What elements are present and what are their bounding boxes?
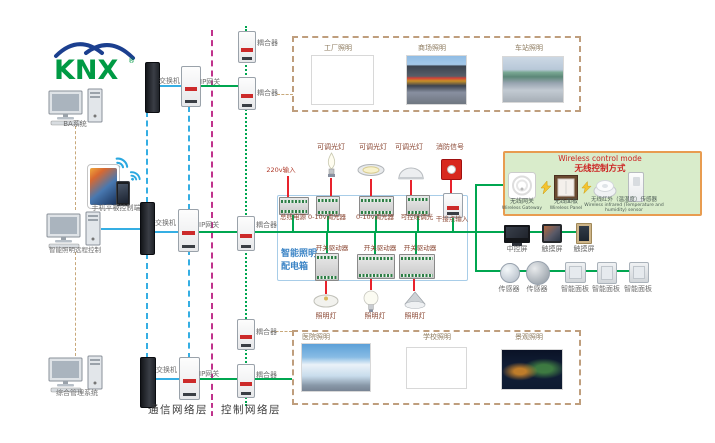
lan-gateway-trunk-bottom bbox=[188, 249, 190, 359]
candle-lamp-icon bbox=[324, 152, 339, 178]
wireless-sensor-icon bbox=[593, 177, 617, 198]
switch-mid bbox=[140, 202, 155, 255]
switch-bottom-label: 交换机 bbox=[156, 366, 177, 374]
downlight-icon bbox=[357, 163, 385, 179]
wireless-sensor-label: 无线红外（温湿度）传感器 Wireless infrared (Temperat… bbox=[584, 197, 664, 214]
lan-switch-trunk-top bbox=[146, 111, 148, 203]
wireless-panel-icon bbox=[554, 175, 578, 200]
link-switch-gateway-bot bbox=[153, 378, 181, 380]
lighting-control-computer-icon bbox=[46, 211, 104, 249]
link-pc-switch-mid bbox=[101, 228, 142, 230]
actuator-1-label: 开关驱动器 bbox=[310, 245, 354, 252]
module-dry-contact-label: 干接点输入 bbox=[430, 216, 474, 223]
line-fire bbox=[450, 178, 452, 193]
bulb-lamp-icon bbox=[363, 290, 379, 313]
rf-bolt-icon-2 bbox=[581, 180, 592, 194]
ba-computer-label: BA系统 bbox=[45, 120, 105, 128]
module-dimmer-2-label: 0-10v调光器 bbox=[349, 214, 401, 221]
coupler-5 bbox=[237, 364, 255, 398]
dimmable-lamp-3-label: 可调光灯 bbox=[389, 143, 429, 151]
ip-gateway-top bbox=[181, 66, 201, 107]
right-trunk bbox=[475, 184, 477, 272]
building-mall-label: 商场照明 bbox=[402, 44, 462, 52]
switch-top bbox=[145, 62, 160, 113]
coupler-2-label: 耦合器 bbox=[257, 89, 278, 97]
building-hospital-photo bbox=[301, 343, 371, 392]
building-station-photo bbox=[502, 56, 564, 103]
switch-bottom bbox=[140, 357, 156, 408]
ip-gateway-top-label: IP网关 bbox=[200, 78, 220, 86]
coupler-1-label: 耦合器 bbox=[257, 39, 278, 47]
building-landscape-photo bbox=[501, 349, 563, 390]
touch-screen-2-icon bbox=[576, 223, 592, 244]
dimmable-lamp-1-label: 可调光灯 bbox=[311, 143, 351, 151]
fire-alarm-icon bbox=[441, 159, 462, 180]
wireless-gateway-icon bbox=[508, 172, 536, 199]
actuator-3-label: 开关驱动器 bbox=[398, 245, 442, 252]
link-coupler-buildings-top bbox=[277, 94, 293, 95]
smart-panel-1-icon bbox=[565, 262, 586, 283]
smart-panel-2-icon bbox=[597, 262, 617, 284]
building-hospital-label: 医院照明 bbox=[286, 333, 346, 341]
ip-gateway-bottom bbox=[179, 357, 200, 400]
management-bus-line-bottom bbox=[75, 252, 76, 356]
lamp-1-label: 照明灯 bbox=[311, 312, 341, 320]
lan-gateway-trunk-top bbox=[188, 106, 190, 210]
line-lamp3 bbox=[410, 180, 412, 195]
link-sensors-2 bbox=[547, 270, 567, 272]
ip-gateway-mid-label: IP网关 bbox=[199, 221, 219, 229]
building-station-label: 车站照明 bbox=[499, 44, 559, 52]
line-lamp6 bbox=[413, 277, 415, 291]
building-mall-photo bbox=[406, 55, 467, 105]
line-lamp4 bbox=[325, 279, 327, 294]
actuator-1 bbox=[315, 253, 339, 281]
coupler-1 bbox=[238, 31, 256, 63]
management-computer-label: 综合管理系统 bbox=[42, 389, 112, 397]
shade-lamp-icon bbox=[401, 291, 429, 310]
control-layer-label: 控制网络层 bbox=[221, 402, 281, 417]
coupler-4-label: 耦合器 bbox=[256, 328, 277, 336]
smart-panel-2-label: 智能面板 bbox=[588, 285, 624, 293]
dimmable-lamp-2-label: 可调光灯 bbox=[353, 143, 393, 151]
building-landscape-label: 景观照明 bbox=[499, 333, 559, 341]
line-lamp1 bbox=[330, 178, 332, 197]
link-trunk-screens bbox=[477, 231, 506, 233]
coupler-3 bbox=[237, 216, 255, 251]
smart-panel-3-icon bbox=[629, 262, 649, 283]
line-220v bbox=[287, 176, 289, 197]
lamp-3-label: 照明灯 bbox=[400, 312, 430, 320]
sensor-2-label: 传感器 bbox=[522, 285, 552, 293]
lan-switch-trunk-bottom bbox=[146, 253, 148, 359]
sensor-1-icon bbox=[500, 263, 520, 283]
ip-gateway-bottom-label: IP网关 bbox=[199, 370, 219, 378]
link-trunk-sensors bbox=[477, 270, 501, 272]
module-dimmer-1-label: 0-10v调光器 bbox=[301, 214, 353, 221]
link-gateway-coupler-bot bbox=[197, 378, 238, 380]
knx-lighting-diagram: 智能照明 配电箱 KNX ® bbox=[0, 0, 715, 443]
ceiling-dome-lamp-icon bbox=[397, 165, 425, 180]
ip-gateway-mid bbox=[178, 209, 199, 252]
management-computer-icon bbox=[48, 355, 106, 393]
link-switch-gateway-mid bbox=[153, 231, 180, 233]
svg-text:®: ® bbox=[128, 57, 135, 65]
central-screen-label: 中控屏 bbox=[502, 245, 532, 253]
rf-bolt-icon-1 bbox=[540, 180, 552, 194]
building-factory-label: 工厂照明 bbox=[308, 44, 368, 52]
touch-screen-1-label: 触摸屏 bbox=[537, 245, 567, 253]
touch-screen-2-label: 触摸屏 bbox=[569, 245, 599, 253]
management-bus-line-top bbox=[75, 126, 76, 210]
smart-panel-3-label: 智能面板 bbox=[620, 285, 656, 293]
switch-mid-label: 交换机 bbox=[155, 219, 176, 227]
sensor-2-icon bbox=[526, 261, 550, 285]
actuator-3 bbox=[399, 254, 435, 279]
coupler-5-label: 耦合器 bbox=[256, 371, 277, 379]
cabinet-title-line2: 配电箱 bbox=[281, 261, 317, 274]
layer-divider-tick bbox=[211, 403, 213, 416]
sensor-1-label: 传感器 bbox=[494, 285, 524, 293]
building-factory-photo bbox=[311, 55, 374, 105]
power-input-label: 220v输入 bbox=[260, 167, 302, 174]
building-school-label: 学校照明 bbox=[407, 333, 467, 341]
phone-icon bbox=[116, 181, 130, 206]
coupler-4 bbox=[237, 319, 255, 350]
coupler-2 bbox=[238, 77, 256, 110]
switch-top-label: 交换机 bbox=[159, 77, 180, 85]
knx-logo-text: KNX bbox=[54, 55, 119, 85]
flush-lamp-icon bbox=[313, 293, 339, 308]
communication-layer-label: 通信网络层 bbox=[148, 402, 208, 417]
lighting-control-computer-label: 智能照明远程控制 bbox=[30, 247, 120, 254]
lamp-2-label: 照明灯 bbox=[360, 312, 390, 320]
knx-logo: KNX ® bbox=[50, 33, 138, 85]
actuator-2 bbox=[357, 254, 395, 279]
line-lamp2 bbox=[370, 179, 372, 196]
touch-screen-1-icon bbox=[542, 224, 562, 243]
coupler-3-label: 耦合器 bbox=[256, 221, 277, 229]
central-screen-icon bbox=[504, 225, 530, 243]
actuator-2-label: 开关驱动器 bbox=[358, 245, 402, 252]
building-school-photo bbox=[406, 347, 467, 389]
fire-signal-label: 消防信号 bbox=[430, 143, 470, 151]
